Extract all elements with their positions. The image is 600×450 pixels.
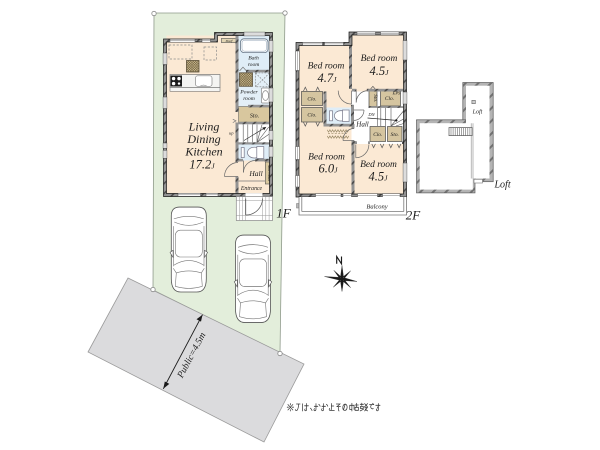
svg-text:Sto.: Sto.: [250, 113, 259, 119]
svg-text:Shoe Closet: Shoe Closet: [267, 165, 271, 182]
svg-text:Shelf: Shelf: [226, 39, 234, 43]
svg-text:EPS: EPS: [392, 91, 402, 96]
svg-text:Sto.: Sto.: [391, 132, 399, 138]
svg-text:Clo.: Clo.: [307, 112, 316, 118]
svg-text:1F: 1F: [276, 206, 292, 221]
svg-text:DN: DN: [367, 112, 375, 117]
svg-text:2F: 2F: [406, 208, 422, 223]
svg-text:Clo.: Clo.: [385, 96, 394, 102]
svg-text:Kitchen: Kitchen: [184, 145, 222, 159]
svg-text:Hall: Hall: [355, 121, 369, 129]
svg-text:Clo.: Clo.: [307, 96, 316, 102]
svg-text:Loft: Loft: [494, 180, 511, 191]
svg-text:Bed room: Bed room: [361, 54, 398, 64]
svg-text:Entrance: Entrance: [240, 186, 263, 192]
svg-text:room: room: [243, 96, 255, 102]
svg-text:Bed room: Bed room: [360, 160, 397, 170]
svg-text:Loft: Loft: [472, 109, 483, 116]
svg-text:Clo.: Clo.: [373, 132, 382, 138]
svg-text:Sto.: Sto.: [372, 94, 378, 102]
svg-text:Bed room: Bed room: [308, 62, 345, 72]
svg-text:Balcony: Balcony: [366, 204, 387, 211]
svg-text:Powder: Powder: [239, 90, 258, 96]
svg-text:up: up: [229, 131, 234, 136]
svg-text:room: room: [248, 62, 260, 68]
svg-text:Bath: Bath: [248, 56, 259, 62]
svg-text:Hall: Hall: [248, 169, 262, 178]
